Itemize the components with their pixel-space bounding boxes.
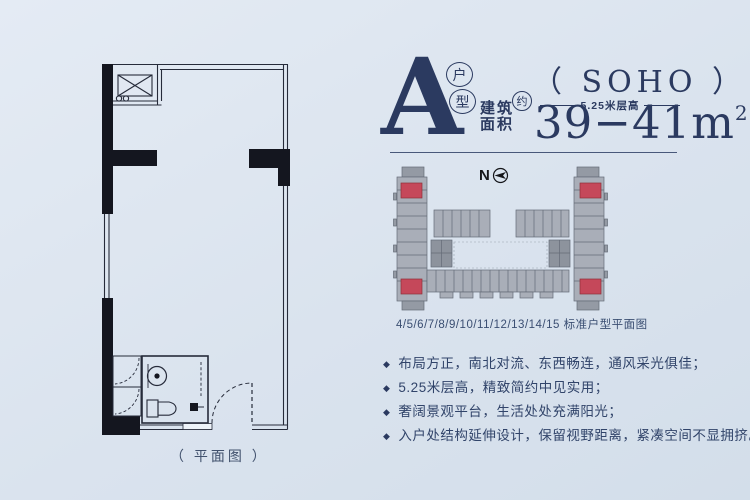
feature-text: 5.25米层高，精致简约中见实用；	[398, 380, 608, 396]
site-plan-caption: 4/5/6/7/8/9/10/11/12/13/14/15 标准户型平面图	[396, 316, 648, 332]
door-threshold	[183, 424, 212, 430]
feature-text: 布局方正，南北对流、东西畅连，通风采光俱佳；	[398, 356, 706, 372]
diamond-bullet-icon: ◆	[383, 428, 390, 444]
diamond-bullet-icon: ◆	[383, 356, 390, 372]
toilet-tank	[147, 400, 158, 417]
diamond-bullet-icon: ◆	[383, 380, 390, 396]
toilet-bowl	[158, 402, 176, 415]
bathroom	[142, 356, 208, 423]
unit-type-badge-top: 户	[446, 62, 473, 87]
floor-plan-drawing	[90, 56, 300, 451]
building-area-label: 建筑 面积	[480, 101, 514, 133]
diamond-bullet-icon: ◆	[383, 404, 390, 420]
soho-label: （ SOHO ）	[532, 57, 747, 101]
closet	[113, 356, 141, 416]
square-meter-sup: 2	[735, 101, 749, 125]
approx-badge: 约	[512, 91, 532, 111]
unit-brochure-page: { "header": { "unit_letter": "A", "unit_…	[0, 0, 750, 500]
entry-door	[212, 383, 252, 423]
fixture-block	[190, 403, 198, 411]
site-key-plan	[392, 163, 622, 313]
feature-item: ◆ 入户处结构延伸设计，保留视野距离，紧凑空间不显拥挤。	[383, 428, 750, 444]
feature-text: 奢阔景观平台，生活处处充满阳光；	[398, 404, 622, 420]
feature-list: ◆ 布局方正，南北对流、东西畅连，通风采光俱佳； ◆ 5.25米层高，精致简约中…	[383, 356, 750, 452]
area-value: 39−41m2	[534, 99, 749, 146]
feature-text: 入户处结构延伸设计，保留视野距离，紧凑空间不显拥挤。	[398, 428, 750, 444]
floor-plan-label: （ 平面图 ）	[170, 446, 269, 466]
wall-segments	[102, 64, 290, 435]
feature-item: ◆ 奢阔景观平台，生活处处充满阳光；	[383, 404, 750, 420]
header-divider	[390, 152, 677, 153]
feature-item: ◆ 5.25米层高，精致简约中见实用；	[383, 380, 750, 396]
feature-item: ◆ 布局方正，南北对流、东西畅连，通风采光俱佳；	[383, 356, 750, 372]
unit-type-badge-bottom: 型	[449, 89, 476, 114]
